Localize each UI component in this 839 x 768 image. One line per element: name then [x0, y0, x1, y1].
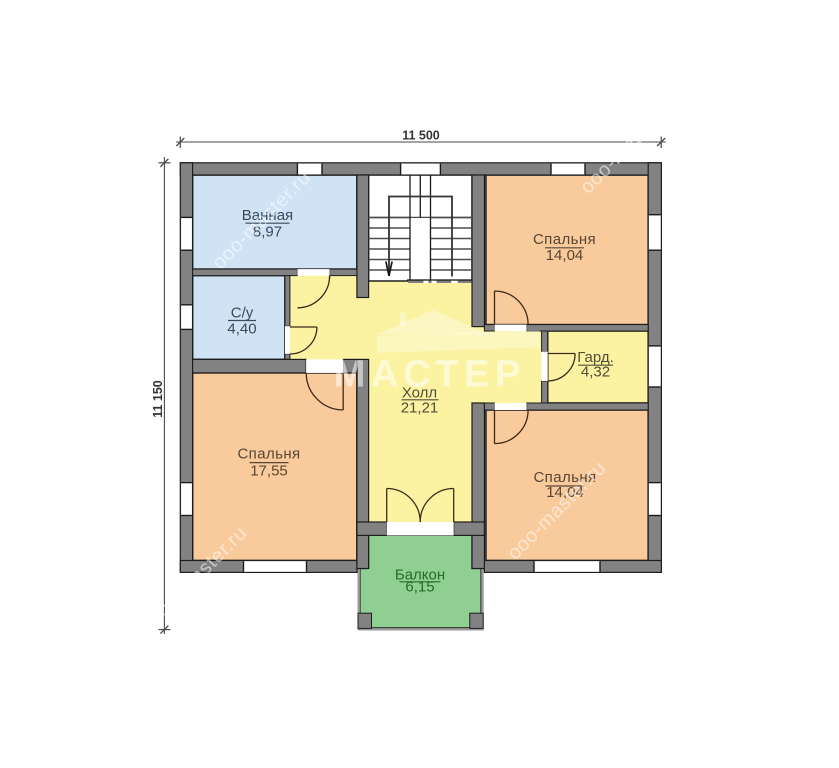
svg-text:21,21: 21,21: [401, 400, 439, 417]
svg-text:Спальня: Спальня: [237, 446, 300, 463]
svg-text:4,32: 4,32: [581, 364, 610, 381]
svg-text:14,04: 14,04: [546, 247, 584, 264]
svg-text:6,15: 6,15: [405, 579, 434, 596]
svg-text:С/у: С/у: [231, 305, 254, 322]
svg-text:МАСТЕР: МАСТЕР: [334, 353, 526, 395]
svg-text:11 500: 11 500: [402, 129, 440, 143]
svg-text:17,55: 17,55: [250, 463, 288, 480]
svg-text:Спальня: Спальня: [533, 231, 596, 248]
svg-text:11 150: 11 150: [151, 380, 165, 418]
svg-text:4,40: 4,40: [227, 321, 256, 338]
